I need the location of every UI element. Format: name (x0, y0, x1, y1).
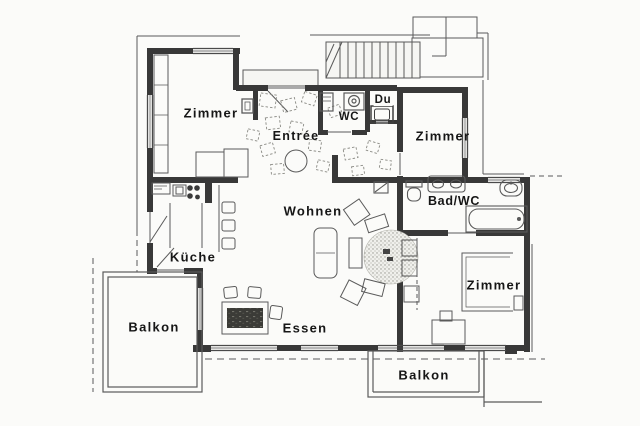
bathtub-icon (466, 206, 527, 232)
toilet-icon (406, 181, 422, 201)
bar-stool-icon (222, 202, 235, 213)
tv-outlet-icon (374, 182, 388, 193)
room-label-kueche: Küche (170, 250, 216, 265)
kitchen-door-swing-icon (150, 216, 167, 242)
entree-round-table-icon (285, 150, 307, 172)
room-label-balkon-right: Balkon (398, 368, 449, 383)
kitchen-fixtures (152, 183, 235, 252)
chair-icon (269, 305, 283, 320)
wc-fixtures (320, 93, 364, 111)
room-label-bad-wc: Bad/WC (428, 194, 480, 208)
balcony-right-walls (368, 351, 542, 407)
window (193, 49, 233, 54)
room-label-zimmer-right: Zimmer (467, 278, 522, 293)
window (211, 346, 277, 351)
bar-stool-icon (222, 238, 235, 249)
nightstand-icon (514, 296, 523, 310)
door-buzzer-icon (242, 99, 253, 113)
washer-icon (344, 93, 364, 110)
room-label-entree: Entrée (273, 129, 320, 143)
dining-table-icon (222, 302, 268, 334)
floor-plan-page: Zimmer Entrée WC Du Zimmer Bad/WC Wohnen… (0, 0, 640, 426)
sink-icon (173, 185, 186, 196)
room-label-essen: Essen (283, 321, 328, 336)
chair-icon (224, 286, 238, 298)
room-label-zimmer-top-right: Zimmer (416, 129, 471, 144)
wardrobe-icon (154, 55, 168, 173)
window (378, 346, 444, 351)
chair-icon (349, 238, 362, 268)
bed-icon (196, 149, 248, 177)
stairs-icon (326, 42, 420, 78)
armchair-icon (340, 280, 366, 306)
entrance-landing (243, 70, 318, 86)
room-label-wohnen: Wohnen (284, 204, 343, 219)
chair-icon (247, 286, 261, 298)
bar-stool-icon (222, 220, 235, 231)
window (465, 346, 506, 351)
room-label-balkon-left: Balkon (128, 320, 179, 335)
room-label-wc: WC (339, 111, 360, 123)
stove-icon (187, 185, 200, 199)
chair-icon (365, 214, 389, 233)
dresser-icon (432, 311, 465, 344)
room-label-zimmer-top-left: Zimmer (184, 106, 239, 121)
window (301, 346, 338, 351)
essen-furniture (222, 286, 283, 334)
window (148, 95, 153, 148)
room-label-du: Du (374, 94, 393, 106)
cabinet-icon (152, 183, 170, 194)
